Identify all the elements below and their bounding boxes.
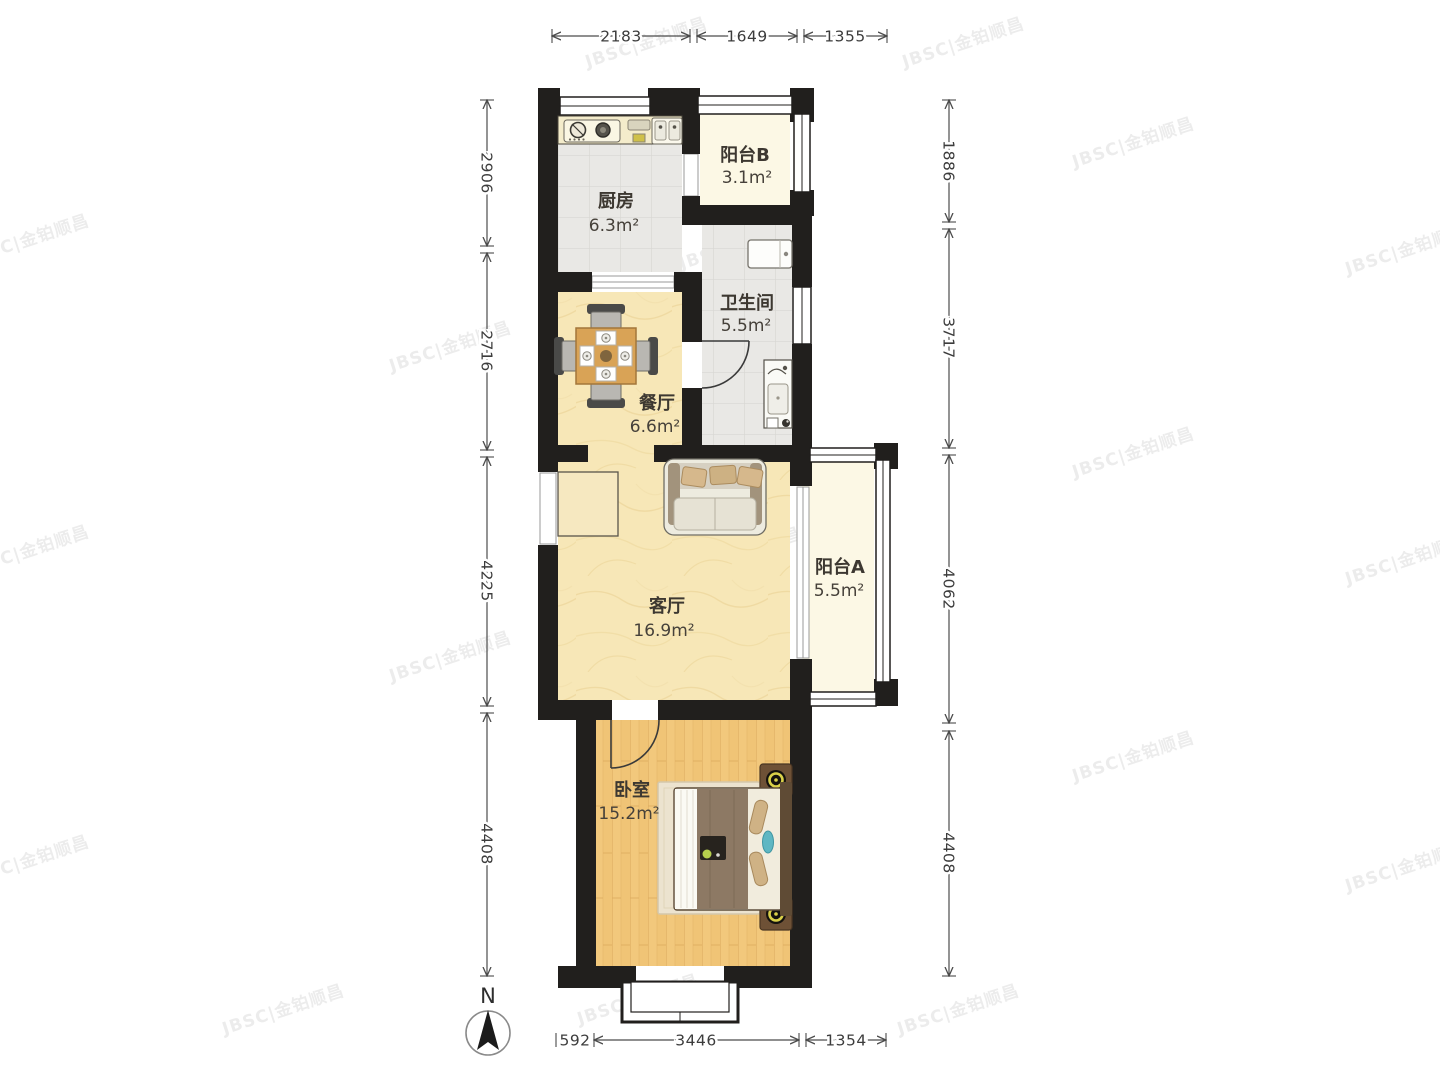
room-area-balcony-b: 3.1m² [722, 168, 772, 188]
watermark: JBSC|金铂顺昌 [899, 13, 1027, 73]
room-label-bathroom: 卫生间 [720, 292, 774, 314]
dim-right-1: 3717 [940, 317, 958, 358]
dim-left-1: 2716 [478, 330, 496, 371]
watermark: JBSC|金铂顺昌 [1342, 837, 1440, 897]
room-label-bedroom: 卧室 [614, 779, 650, 801]
kitchen-balcony-opening [684, 154, 698, 196]
entry-threshold [540, 473, 556, 544]
watermark: JBSC|金铂顺昌 [219, 980, 347, 1040]
floorplan-canvas: JBSC|金铂顺昌 JBSC|金铂顺昌 JBSC|金铂顺昌 JBSC|金铂顺昌 … [0, 0, 1440, 1080]
watermark: JBSC|金铂顺昌 [894, 980, 1022, 1040]
watermark: JBSC|金铂顺昌 [0, 210, 92, 270]
watermark: JBSC|金铂顺昌 [0, 831, 92, 891]
room-label-balcony-b: 阳台B [720, 144, 770, 166]
dim-right-3: 4408 [940, 832, 958, 873]
watermark: JBSC|金铂顺昌 [1342, 220, 1440, 280]
dim-bottom-2: 1354 [825, 1032, 866, 1050]
floorplan-svg: JBSC|金铂顺昌 JBSC|金铂顺昌 JBSC|金铂顺昌 JBSC|金铂顺昌 … [0, 0, 1440, 1080]
dim-left-3: 4408 [478, 823, 496, 864]
dim-right-0: 1886 [940, 140, 958, 181]
room-area-living: 16.9m² [633, 621, 694, 641]
watermark: JBSC|金铂顺昌 [1069, 423, 1197, 483]
sofa [664, 459, 766, 535]
bathroom-vanity [764, 360, 792, 428]
dim-top-1: 1649 [726, 28, 767, 46]
dim-bottom-0: 592 [559, 1032, 590, 1050]
room-label-kitchen: 厨房 [598, 190, 634, 212]
compass: N [466, 984, 510, 1055]
kitchen-counter [558, 116, 682, 144]
north-label: N [480, 984, 496, 1008]
dim-top-2: 1355 [824, 28, 865, 46]
bedroom-bay-window [622, 982, 738, 1022]
bed-area [658, 764, 792, 930]
room-area-dining: 6.6m² [630, 417, 680, 437]
room-label-living: 客厅 [649, 595, 685, 617]
dim-left-0: 2906 [478, 152, 496, 193]
room-area-bathroom: 5.5m² [721, 316, 771, 336]
watermark: JBSC|金铂顺昌 [386, 627, 514, 687]
washing-machine [748, 240, 792, 268]
dim-left-2: 4225 [478, 560, 496, 601]
watermark: JBSC|金铂顺昌 [1342, 530, 1440, 590]
dim-right-2: 4062 [940, 568, 958, 609]
dim-top-0: 2183 [600, 28, 641, 46]
watermark: JBSC|金铂顺昌 [1069, 727, 1197, 787]
room-area-balcony-a: 5.5m² [814, 581, 864, 601]
room-area-bedroom: 15.2m² [598, 804, 659, 824]
headboard [780, 782, 792, 916]
room-label-balcony-a: 阳台A [815, 556, 865, 578]
watermark: JBSC|金铂顺昌 [1069, 113, 1197, 173]
watermark: JBSC|金铂顺昌 [0, 521, 92, 581]
room-area-kitchen: 6.3m² [589, 216, 639, 236]
dim-bottom-1: 3446 [675, 1032, 716, 1050]
entry-cabinet [558, 472, 618, 536]
room-label-dining: 餐厅 [638, 392, 675, 414]
